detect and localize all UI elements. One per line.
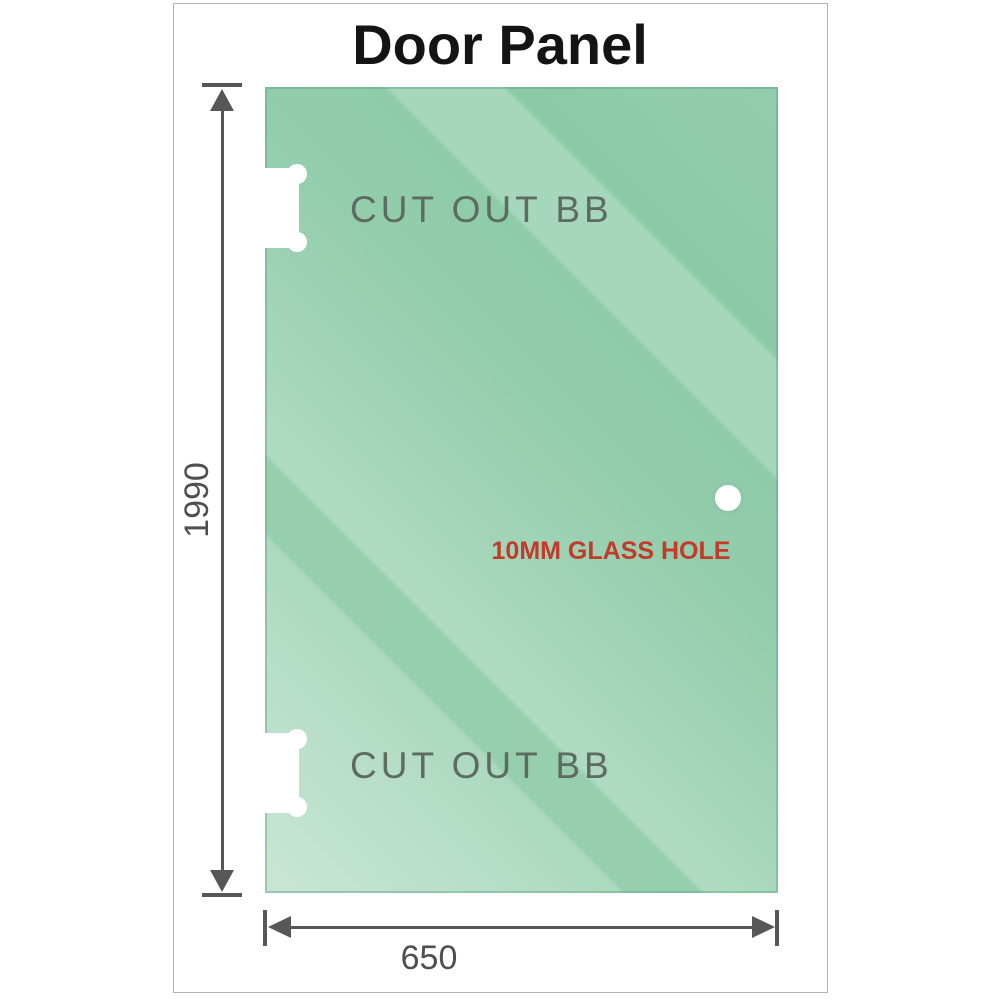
arrow-right-icon <box>752 916 775 938</box>
glass-hole-label: 10MM GLASS HOLE <box>461 537 761 566</box>
width-dimension-cap-right <box>775 910 779 946</box>
arrow-left-icon <box>268 916 291 938</box>
hinge-cutout-bottom <box>265 733 299 813</box>
height-dimension-value: 1990 <box>177 430 217 570</box>
width-dimension-line <box>289 926 753 929</box>
cutout-drill-hole-icon <box>287 729 307 749</box>
height-dimension-line <box>221 108 224 873</box>
width-dimension-value: 650 <box>369 938 489 978</box>
glass-hole-icon <box>715 485 741 511</box>
width-dimension-cap-left <box>263 910 267 946</box>
height-dimension-cap-bottom <box>202 893 242 897</box>
cutout-label-top: CUT OUT BB <box>350 189 690 231</box>
diagram-title: Door Panel <box>173 12 827 77</box>
cutout-drill-hole-icon <box>287 164 307 184</box>
cutout-drill-hole-icon <box>287 232 307 252</box>
door-panel-diagram: Door Panel CUT OUT BB CUT OUT BB 10MM GL… <box>0 0 1000 1000</box>
cutout-label-bottom: CUT OUT BB <box>350 745 690 787</box>
cutout-drill-hole-icon <box>287 797 307 817</box>
glass-panel: CUT OUT BB CUT OUT BB 10MM GLASS HOLE <box>265 87 778 893</box>
arrow-down-icon <box>210 870 234 892</box>
hinge-cutout-top <box>265 168 299 248</box>
height-dimension-cap-top <box>202 83 242 87</box>
